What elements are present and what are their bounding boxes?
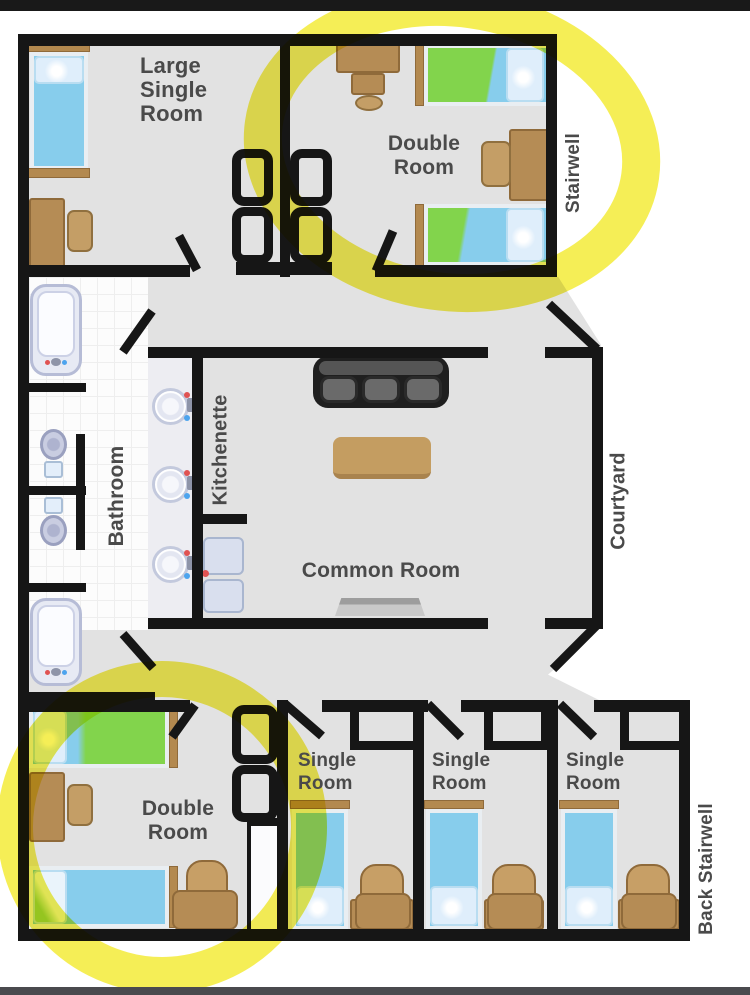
toilet-tank bbox=[44, 497, 63, 514]
bed-headboard bbox=[415, 44, 424, 106]
bottom-letterbox-bar bbox=[0, 987, 750, 995]
wall bbox=[545, 618, 603, 629]
wall bbox=[76, 434, 85, 550]
wall bbox=[22, 383, 86, 392]
room-label-bathroom: Bathroom bbox=[105, 446, 129, 547]
toilet-bowl bbox=[40, 429, 67, 460]
wall bbox=[18, 265, 190, 277]
wardrobe bbox=[232, 765, 278, 822]
bed-pillow bbox=[506, 208, 544, 262]
desk bbox=[29, 198, 65, 270]
label-line: Room bbox=[142, 821, 214, 845]
wall bbox=[192, 347, 203, 629]
armchair-seat bbox=[621, 893, 677, 930]
wardrobe bbox=[290, 149, 332, 206]
coffee-table bbox=[333, 437, 431, 479]
bathtub-basin bbox=[37, 605, 75, 667]
label-line: Room bbox=[388, 156, 460, 180]
room-label-double-top: Double Room bbox=[388, 132, 460, 180]
wall bbox=[18, 929, 690, 941]
bed-pillow bbox=[33, 710, 67, 764]
door-frame bbox=[350, 712, 422, 750]
label-line: Single bbox=[140, 78, 207, 102]
room-label-courtyard: Courtyard bbox=[608, 452, 631, 549]
floor-plan: Large Single Room Double Room Stairwell … bbox=[0, 0, 750, 995]
bathtub-faucet bbox=[51, 358, 61, 366]
label-line: Room bbox=[140, 102, 207, 126]
room-label-common-room: Common Room bbox=[302, 559, 461, 583]
cold-tap-dot bbox=[184, 573, 190, 579]
label-line: Single bbox=[432, 749, 490, 772]
label-line: Room bbox=[298, 772, 356, 795]
desk-chair bbox=[67, 784, 93, 826]
bathtub-faucet bbox=[51, 668, 61, 676]
desk bbox=[336, 43, 400, 73]
room-label-single-2: Single Room bbox=[432, 749, 490, 795]
kitchen-sink-basin bbox=[203, 579, 244, 613]
bed-headboard bbox=[415, 204, 424, 266]
bed-pillow bbox=[506, 48, 544, 102]
desk bbox=[29, 772, 65, 842]
door-frame bbox=[484, 712, 550, 750]
bed-pillow bbox=[296, 886, 344, 926]
bed-pillow bbox=[33, 870, 67, 924]
sofa-cushion bbox=[320, 376, 358, 403]
bed-headboard bbox=[424, 800, 484, 809]
label-line: Room bbox=[566, 772, 624, 795]
bed-pillow bbox=[565, 886, 613, 926]
desk bbox=[509, 129, 551, 201]
tv-mat bbox=[335, 598, 425, 616]
label-line: Large bbox=[140, 54, 207, 78]
room-label-back-stairwell: Back Stairwell bbox=[696, 803, 718, 935]
label-line: Single bbox=[298, 749, 356, 772]
desk-chair bbox=[67, 210, 93, 252]
label-line: Double bbox=[142, 797, 214, 821]
wardrobe bbox=[290, 207, 332, 264]
wardrobe bbox=[232, 149, 273, 206]
bed-headboard bbox=[290, 800, 350, 809]
wall bbox=[594, 700, 690, 712]
wall bbox=[18, 700, 190, 712]
wall bbox=[280, 34, 290, 277]
room-label-large-single: Large Single Room bbox=[140, 54, 207, 126]
cold-tap-dot bbox=[184, 415, 190, 421]
room-label-kitchenette: Kitchenette bbox=[210, 394, 233, 505]
hot-tap-dot bbox=[184, 470, 190, 476]
hot-tap-dot bbox=[184, 392, 190, 398]
desk-chair bbox=[481, 141, 511, 187]
armchair-seat bbox=[172, 890, 238, 930]
wall bbox=[236, 262, 332, 275]
label-line: Single bbox=[566, 749, 624, 772]
desk-chair bbox=[355, 95, 383, 111]
sofa-backrest bbox=[319, 361, 443, 375]
door-frame bbox=[620, 712, 688, 750]
wardrobe bbox=[232, 705, 278, 764]
bed-pillow bbox=[34, 56, 84, 84]
closet-nook bbox=[247, 818, 281, 930]
sofa-cushion bbox=[404, 376, 442, 403]
room-label-single-3: Single Room bbox=[566, 749, 624, 795]
bed-pillow bbox=[430, 886, 478, 926]
wall bbox=[197, 514, 247, 524]
hot-tap-dot bbox=[45, 360, 50, 365]
label-line: Double bbox=[388, 132, 460, 156]
toilet-bowl bbox=[40, 515, 67, 546]
hot-tap-dot bbox=[184, 550, 190, 556]
armchair-seat bbox=[355, 893, 411, 930]
wall bbox=[546, 34, 557, 277]
desk-extension bbox=[351, 73, 385, 95]
label-line: Room bbox=[432, 772, 490, 795]
cold-tap-dot bbox=[184, 493, 190, 499]
room-label-single-1: Single Room bbox=[298, 749, 356, 795]
cold-tap-dot bbox=[62, 670, 67, 675]
room-label-double-bottom: Double Room bbox=[142, 797, 214, 845]
room-label-stairwell: Stairwell bbox=[563, 133, 585, 213]
bathtub-basin bbox=[37, 291, 75, 357]
cold-tap-dot bbox=[62, 360, 67, 365]
top-letterbox-bar bbox=[0, 0, 750, 11]
bed-footboard bbox=[28, 168, 90, 178]
hot-tap-dot bbox=[202, 570, 209, 577]
kitchen-sink-basin bbox=[203, 537, 244, 575]
armchair-seat bbox=[487, 893, 543, 930]
wall bbox=[22, 583, 86, 592]
wall bbox=[375, 265, 557, 277]
bed-headboard bbox=[169, 706, 178, 768]
hot-tap-dot bbox=[45, 670, 50, 675]
wall bbox=[592, 347, 603, 629]
sofa-cushion bbox=[362, 376, 400, 403]
bed-headboard bbox=[559, 800, 619, 809]
wall bbox=[461, 700, 558, 712]
wall bbox=[277, 700, 288, 941]
wardrobe bbox=[232, 207, 273, 264]
toilet-tank bbox=[44, 461, 63, 478]
